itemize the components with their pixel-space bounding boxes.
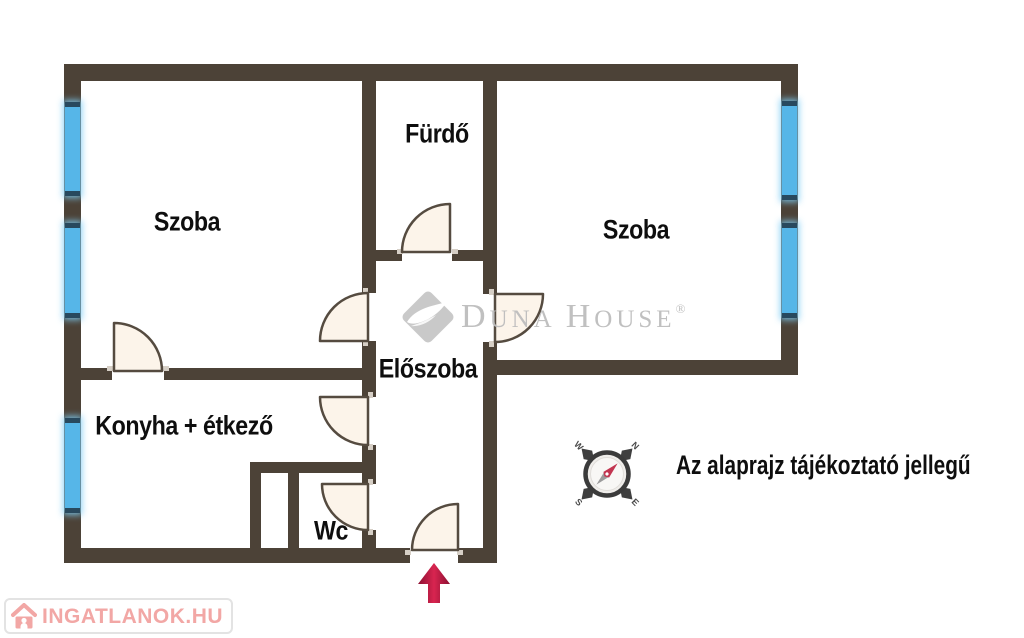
wordmark-una: UNA (490, 306, 556, 333)
wall-niche-left (250, 462, 261, 563)
wordmark-d: D (461, 298, 490, 335)
door-furdo (402, 204, 450, 252)
window-left-1 (65, 102, 80, 196)
wall-szoba-right-bottom (483, 360, 798, 375)
room-label-eloszoba: Előszoba (379, 354, 477, 385)
wall-furdo-bottom-right (452, 250, 497, 261)
window-left-2 (65, 223, 80, 318)
compass-icon: N E S W (563, 430, 651, 518)
wordmark-ouse: OUSE (594, 306, 675, 333)
room-label-szoba-right: Szoba (603, 215, 669, 246)
window-right-2 (782, 223, 797, 318)
duna-house-diamond-icon (399, 288, 457, 346)
room-label-furdo: Fürdő (405, 119, 469, 150)
wall-szoba-left-bottom-b (164, 368, 376, 380)
ingatlanok-logo: INGATLANOK.HU (4, 598, 233, 634)
compass-letter-s: S (573, 497, 584, 508)
entrance-arrow-icon (416, 562, 452, 604)
wordmark-h: H (566, 298, 595, 335)
wall-niche-top (250, 462, 376, 473)
wall-furdo-bottom-left (362, 250, 402, 261)
registered-mark: ® (676, 301, 686, 316)
wall-eloszoba-right-bottom (483, 342, 497, 563)
ingatlanok-logo-text: INGATLANOK.HU (42, 606, 223, 627)
wall-bottom-left (64, 548, 410, 563)
room-label-szoba-left: Szoba (154, 207, 220, 238)
room-label-wc: Wc (314, 516, 348, 547)
window-right-1 (782, 101, 797, 200)
room-label-konyha: Konyha + étkező (95, 411, 272, 442)
wall-top (64, 64, 798, 81)
wall-niche-right (288, 470, 299, 563)
house-icon (11, 603, 37, 629)
wall-szoba-left-bottom-a (64, 368, 112, 380)
disclaimer-text: Az alaprajz tájékoztató jellegű (676, 450, 971, 481)
door-eloszoba-szoba-left (320, 293, 368, 341)
wall-central-d (362, 530, 376, 563)
window-left-3 (65, 418, 80, 513)
floorplan-canvas: DUNAHOUSE® Szoba Fürdő Szoba Előszoba Ko… (0, 0, 1024, 638)
duna-house-wordmark: DUNAHOUSE® (461, 300, 685, 334)
duna-house-watermark: DUNAHOUSE® (399, 288, 685, 346)
door-entrance (412, 504, 458, 550)
door-szoba-left (114, 323, 162, 371)
door-konyha (320, 397, 368, 445)
